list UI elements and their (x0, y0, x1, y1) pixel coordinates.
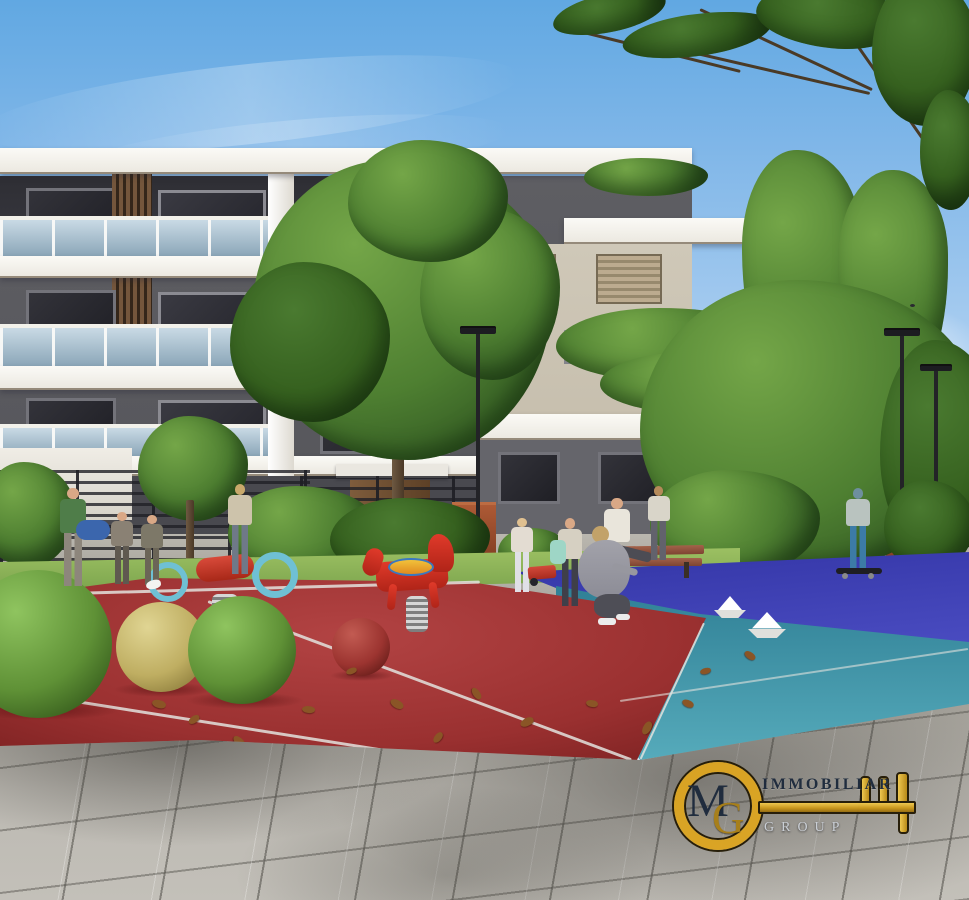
person-legs (115, 546, 129, 584)
window (498, 452, 560, 504)
spring-rider-scooter-wheel (252, 552, 298, 598)
woman-behind-bench (646, 486, 671, 560)
logo-key-tooth (896, 772, 909, 803)
person-head (611, 498, 622, 509)
person-torso (141, 524, 162, 548)
person-head (853, 488, 864, 499)
person-torso (111, 521, 132, 545)
center-tree-canopy (230, 262, 390, 422)
person-torso (228, 495, 253, 526)
logo-text-group: GROUP (764, 820, 846, 836)
duffel-bag (76, 520, 110, 540)
glass-balcony-railing (0, 324, 268, 366)
person-legs (651, 521, 666, 560)
person-head (654, 486, 664, 496)
person-legs (850, 526, 867, 568)
glass-balcony-railing (0, 216, 268, 256)
play-ball-red (332, 618, 390, 676)
roller-shutter-window (596, 254, 662, 304)
person-shoe (598, 618, 616, 625)
person-legs (232, 525, 249, 574)
bird (910, 304, 915, 307)
logo-text-immobiliar: IMMOBILIAR (762, 776, 893, 794)
logo-monogram-g: G (712, 796, 745, 841)
person-head (117, 512, 126, 521)
tree-trunk (186, 500, 194, 562)
backpack (550, 540, 566, 564)
street-lamp-head (460, 326, 496, 334)
floor-slab (564, 218, 768, 244)
skateboard-wheel (842, 573, 848, 579)
roof-edge-plants (584, 158, 708, 196)
bench-leg (684, 562, 689, 578)
woman-walking-left (226, 484, 254, 574)
person-head (147, 515, 156, 524)
logo-key-tooth (898, 812, 909, 834)
logo-key-shaft (758, 801, 916, 814)
person-head (235, 484, 246, 495)
rendering-scene: M G IMMOBILIAR GROUP (0, 0, 969, 900)
play-ball-green (188, 596, 296, 704)
boy-on-skateboard (844, 488, 872, 568)
person-torso (511, 527, 532, 552)
child-walking-1 (110, 512, 134, 584)
child-walking-2 (140, 515, 164, 585)
spring-rider-horse-saddle (388, 558, 434, 576)
skateboard-wheel (868, 573, 874, 579)
toy-cart-wheel (530, 578, 538, 586)
spring-rider-horse-spring (406, 596, 428, 632)
center-tree-canopy (348, 140, 508, 262)
person-torso (648, 496, 670, 521)
woman-crouching (570, 526, 642, 636)
person-torso (846, 499, 871, 526)
street-lamp-head (920, 364, 952, 371)
person-legs (64, 533, 82, 586)
person-head (67, 488, 78, 499)
street-lamp-head (884, 328, 920, 336)
person-shoe (616, 614, 630, 620)
watermark-logo: M G IMMOBILIAR GROUP (660, 754, 960, 864)
person-head (517, 518, 526, 527)
